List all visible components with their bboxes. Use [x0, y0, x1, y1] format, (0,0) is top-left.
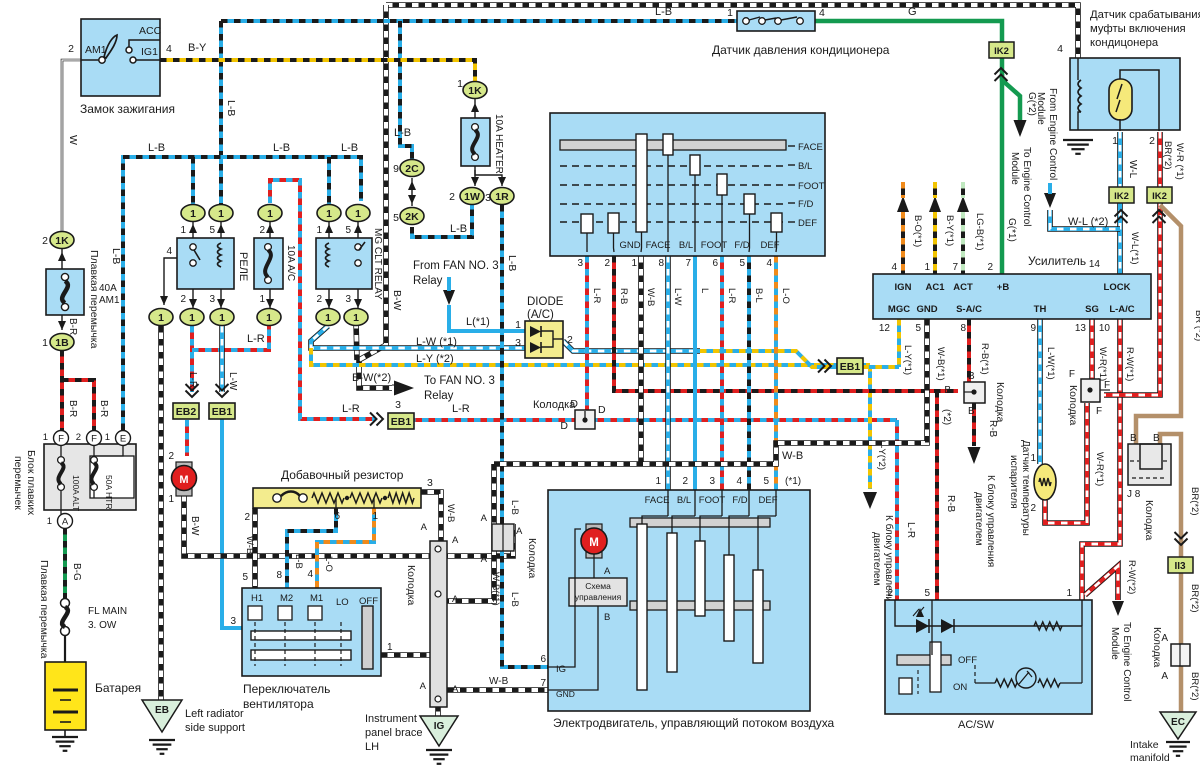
- svg-text:H1: H1: [251, 593, 263, 604]
- svg-text:+B: +B: [997, 282, 1010, 293]
- svg-text:DEF: DEF: [759, 495, 778, 506]
- svg-text:4: 4: [1057, 43, 1063, 55]
- svg-text:F/D: F/D: [732, 495, 747, 506]
- svg-text:W-B: W-B: [244, 536, 255, 554]
- svg-text:5: 5: [924, 588, 930, 599]
- svg-text:EB1: EB1: [840, 361, 861, 373]
- svg-text:1: 1: [266, 312, 272, 324]
- svg-text:L-B: L-B: [110, 248, 122, 264]
- svg-text:R-B: R-B: [987, 420, 998, 438]
- svg-text:L-O: L-O: [780, 288, 791, 304]
- svg-text:4: 4: [307, 569, 313, 580]
- svg-text:EB1: EB1: [212, 406, 233, 418]
- svg-text:L-R: L-R: [591, 288, 602, 303]
- svg-text:5: 5: [763, 476, 769, 487]
- svg-text:panel brace: panel brace: [365, 727, 423, 739]
- svg-text:II3: II3: [1174, 561, 1186, 572]
- svg-text:5: 5: [393, 212, 399, 224]
- svg-text:Датчик давления кондиционера: Датчик давления кондиционера: [712, 43, 890, 57]
- svg-text:R-B: R-B: [945, 495, 956, 513]
- svg-text:B: B: [968, 371, 975, 382]
- svg-text:Плавкая перемычка: Плавкая перемычка: [38, 560, 50, 659]
- svg-text:1: 1: [387, 642, 393, 653]
- svg-text:2: 2: [180, 294, 186, 305]
- svg-text:L-R: L-R: [187, 372, 198, 388]
- svg-text:50A HTR: 50A HTR: [104, 475, 114, 510]
- svg-text:Module: Module: [1009, 152, 1020, 185]
- svg-text:L-R: L-R: [726, 288, 737, 303]
- svg-text:(*1): (*1): [785, 476, 801, 487]
- svg-text:Замок зажигания: Замок зажигания: [80, 102, 175, 116]
- svg-text:B/L: B/L: [677, 495, 691, 506]
- svg-text:L-R: L-R: [905, 522, 916, 538]
- svg-text:РЕЛЕ: РЕЛЕ: [237, 252, 249, 281]
- svg-text:L-R: L-R: [452, 403, 470, 415]
- svg-text:B-R: B-R: [67, 400, 78, 417]
- svg-text:2: 2: [449, 191, 455, 203]
- svg-text:ON: ON: [953, 682, 967, 693]
- svg-text:Module: Module: [1035, 92, 1046, 125]
- svg-text:L-B: L-B: [273, 142, 290, 154]
- svg-text:F: F: [1096, 406, 1102, 417]
- svg-text:(*2): (*2): [941, 409, 952, 425]
- svg-text:A: A: [452, 535, 459, 546]
- svg-text:двигателем: двигателем: [973, 492, 984, 546]
- svg-text:1K: 1K: [468, 85, 482, 97]
- svg-text:D: D: [560, 420, 568, 432]
- svg-text:управления: управления: [575, 592, 622, 602]
- svg-text:1: 1: [457, 78, 463, 90]
- svg-text:2: 2: [76, 432, 81, 443]
- svg-text:F: F: [91, 434, 97, 445]
- svg-text:1: 1: [168, 494, 174, 505]
- svg-text:двигателем: двигателем: [871, 532, 882, 586]
- svg-text:AC/SW: AC/SW: [958, 719, 995, 731]
- svg-text:FACE: FACE: [798, 142, 823, 153]
- svg-text:A: A: [516, 526, 523, 537]
- svg-text:испарителя: испарителя: [1008, 455, 1019, 509]
- svg-text:BR(*2): BR(*2): [1189, 487, 1200, 516]
- svg-text:1: 1: [105, 432, 110, 443]
- svg-text:FOOT: FOOT: [798, 181, 825, 192]
- svg-text:OFF: OFF: [958, 655, 977, 666]
- svg-text:Датчик срабатывания: Датчик срабатывания: [1090, 9, 1200, 21]
- svg-text:BR(*2): BR(*2): [1189, 584, 1200, 613]
- svg-text:1: 1: [372, 511, 378, 522]
- svg-text:EC: EC: [1171, 717, 1185, 728]
- svg-text:6: 6: [540, 654, 546, 665]
- svg-text:1: 1: [353, 312, 359, 324]
- svg-text:1: 1: [267, 208, 273, 220]
- svg-text:100A ALT: 100A ALT: [71, 475, 81, 511]
- svg-text:1K: 1K: [55, 235, 69, 247]
- svg-text:Колодка: Колодка: [1151, 627, 1163, 668]
- svg-text:2K: 2K: [405, 211, 419, 223]
- svg-text:To Engine Control: To Engine Control: [1121, 622, 1132, 702]
- svg-text:Колодка: Колодка: [526, 538, 538, 579]
- svg-text:F: F: [1104, 380, 1110, 391]
- svg-text:1: 1: [42, 337, 48, 349]
- svg-text:AM1: AM1: [85, 44, 107, 56]
- svg-text:B-W(*2): B-W(*2): [352, 372, 391, 384]
- svg-text:B: B: [1130, 433, 1137, 444]
- svg-text:W-R (*1): W-R (*1): [1174, 143, 1185, 180]
- svg-text:LH: LH: [365, 741, 379, 753]
- svg-text:7: 7: [685, 258, 691, 269]
- svg-text:B-W: B-W: [189, 516, 200, 536]
- svg-text:IGN: IGN: [895, 282, 912, 293]
- svg-text:FL MAIN: FL MAIN: [88, 606, 127, 617]
- svg-text:L-B: L-B: [293, 554, 304, 569]
- svg-text:1: 1: [655, 476, 661, 487]
- svg-text:Батарея: Батарея: [95, 681, 141, 695]
- svg-text:S-A/C: S-A/C: [956, 304, 982, 315]
- svg-text:2: 2: [887, 588, 893, 599]
- svg-text:Добавочный резистор: Добавочный резистор: [281, 468, 404, 482]
- svg-text:2: 2: [987, 262, 993, 273]
- svg-text:LO: LO: [336, 597, 349, 608]
- svg-text:W-L(*1): W-L(*1): [1129, 232, 1140, 265]
- svg-text:1B: 1B: [55, 337, 69, 349]
- svg-text:Колодка: Колодка: [994, 382, 1006, 423]
- svg-text:B-R: B-R: [98, 400, 109, 417]
- svg-text:3: 3: [515, 337, 521, 349]
- svg-text:To FAN NO. 3: To FAN NO. 3: [424, 375, 495, 387]
- svg-text:L-W(*1): L-W(*1): [1045, 347, 1056, 380]
- svg-text:1: 1: [218, 208, 224, 220]
- svg-text:From Engine Control: From Engine Control: [1047, 88, 1058, 180]
- svg-text:AM1: AM1: [99, 295, 120, 306]
- svg-text:5: 5: [739, 258, 745, 269]
- svg-text:5: 5: [915, 323, 921, 334]
- svg-text:муфты включения: муфты включения: [1090, 23, 1186, 35]
- svg-text:A: A: [604, 566, 611, 577]
- svg-text:(A/C): (A/C): [527, 309, 554, 321]
- svg-text:К блоку управления: К блоку управления: [985, 475, 997, 567]
- svg-text:1: 1: [515, 319, 521, 331]
- svg-text:1: 1: [158, 312, 164, 324]
- svg-text:LG-B(*1): LG-B(*1): [974, 213, 985, 250]
- svg-text:6: 6: [334, 511, 340, 522]
- svg-text:1: 1: [326, 208, 332, 220]
- svg-text:IK2: IK2: [1114, 191, 1129, 202]
- svg-text:3: 3: [709, 476, 715, 487]
- svg-text:G(*1): G(*1): [1006, 218, 1017, 242]
- svg-text:IG: IG: [556, 664, 566, 675]
- svg-text:B: B: [1153, 433, 1160, 444]
- svg-text:L-A/C: L-A/C: [1109, 304, 1134, 315]
- svg-text:1: 1: [259, 294, 265, 305]
- svg-text:1: 1: [190, 208, 196, 220]
- svg-text:B-Y(*1): B-Y(*1): [944, 215, 955, 246]
- svg-text:B-L: B-L: [753, 288, 764, 303]
- svg-text:Instrument: Instrument: [365, 713, 417, 725]
- svg-text:L-B: L-B: [394, 127, 411, 139]
- svg-text:Колодка: Колодка: [1067, 385, 1079, 426]
- svg-text:F: F: [58, 434, 64, 445]
- svg-text:FACE: FACE: [645, 495, 670, 506]
- svg-text:вентилятора: вентилятора: [243, 697, 314, 711]
- svg-text:9: 9: [393, 163, 399, 175]
- svg-text:FOOT: FOOT: [701, 240, 728, 251]
- svg-text:кондицонера: кондицонера: [1090, 37, 1159, 49]
- svg-text:6: 6: [712, 258, 718, 269]
- svg-text:12: 12: [879, 323, 891, 334]
- svg-text:D: D: [598, 404, 606, 416]
- svg-text:Переключатель: Переключатель: [243, 682, 330, 696]
- svg-text:W-B: W-B: [645, 288, 656, 306]
- svg-text:Колодка: Колодка: [405, 565, 417, 606]
- svg-text:LOCK: LOCK: [1104, 282, 1131, 293]
- svg-text:перемычек: перемычек: [12, 456, 24, 510]
- svg-text:3: 3: [209, 294, 215, 305]
- svg-text:B: B: [968, 406, 975, 417]
- svg-text:2: 2: [244, 512, 250, 523]
- svg-text:1: 1: [355, 208, 361, 220]
- svg-text:B-R: B-R: [67, 318, 78, 335]
- svg-text:L-Y(*2): L-Y(*2): [876, 440, 887, 470]
- svg-text:DIODE: DIODE: [527, 296, 564, 308]
- svg-text:G: G: [908, 6, 917, 18]
- svg-text:L-Y(*1): L-Y(*1): [902, 345, 913, 375]
- svg-text:1: 1: [316, 225, 322, 236]
- svg-text:IK2: IK2: [1152, 191, 1167, 202]
- svg-text:2: 2: [168, 451, 174, 462]
- svg-text:9: 9: [1030, 323, 1036, 334]
- svg-text:J 8: J 8: [1127, 489, 1141, 500]
- svg-text:IG1: IG1: [141, 46, 158, 58]
- svg-text:7: 7: [540, 678, 546, 689]
- svg-text:1W: 1W: [464, 191, 480, 203]
- svg-text:FACE: FACE: [646, 240, 671, 251]
- svg-text:Датчик температуры: Датчик температуры: [1020, 440, 1031, 536]
- svg-text:side support: side support: [185, 722, 245, 734]
- svg-text:40A: 40A: [99, 283, 117, 294]
- svg-text:2: 2: [604, 258, 610, 269]
- svg-text:M: M: [589, 537, 599, 549]
- svg-text:L-B: L-B: [655, 6, 672, 18]
- svg-text:2: 2: [316, 294, 322, 305]
- svg-text:L-B: L-B: [148, 142, 165, 154]
- svg-text:E: E: [120, 434, 126, 445]
- svg-text:F: F: [1069, 369, 1075, 380]
- svg-text:4: 4: [166, 246, 172, 257]
- svg-text:2: 2: [1149, 135, 1155, 147]
- svg-text:2: 2: [1030, 503, 1036, 514]
- svg-text:B/L: B/L: [679, 240, 693, 251]
- svg-text:10: 10: [1099, 323, 1111, 334]
- svg-text:2: 2: [42, 235, 48, 247]
- svg-text:W-B: W-B: [489, 676, 509, 687]
- svg-text:D: D: [570, 398, 578, 410]
- svg-text:F/D: F/D: [734, 240, 749, 251]
- svg-text:R-B: R-B: [618, 288, 629, 304]
- svg-text:4: 4: [766, 258, 772, 269]
- svg-text:W-B: W-B: [445, 504, 456, 522]
- svg-text:W-R(*1): W-R(*1): [1097, 347, 1108, 381]
- svg-text:ACC: ACC: [139, 25, 162, 37]
- svg-text:Relay: Relay: [424, 390, 454, 402]
- svg-text:To Engine Control: To Engine Control: [1021, 147, 1032, 227]
- svg-text:EB1: EB1: [391, 416, 412, 428]
- svg-text:L: L: [699, 288, 710, 293]
- svg-text:A: A: [421, 522, 428, 533]
- svg-text:1: 1: [631, 258, 637, 269]
- svg-text:B-W: B-W: [391, 290, 403, 311]
- svg-text:A: A: [481, 513, 488, 524]
- svg-text:10A A/C: 10A A/C: [285, 245, 296, 281]
- svg-text:R-B(*1): R-B(*1): [979, 343, 990, 375]
- svg-text:R-W(*1): R-W(*1): [1124, 347, 1135, 381]
- svg-text:IK2: IK2: [994, 46, 1009, 57]
- svg-text:W: W: [67, 135, 79, 145]
- svg-text:Блок плавких: Блок плавких: [25, 450, 37, 516]
- svg-text:DEF: DEF: [761, 240, 780, 251]
- svg-text:B-O(*1): B-O(*1): [912, 215, 923, 247]
- svg-text:2C: 2C: [405, 163, 419, 175]
- svg-text:8: 8: [276, 570, 282, 581]
- svg-text:M1: M1: [310, 593, 323, 604]
- svg-text:4: 4: [819, 7, 825, 19]
- svg-text:B: B: [604, 612, 610, 623]
- svg-text:1: 1: [924, 262, 930, 273]
- svg-text:EB2: EB2: [176, 406, 197, 418]
- svg-text:TH: TH: [1034, 304, 1047, 315]
- svg-text:L-O: L-O: [323, 556, 334, 572]
- svg-text:3. OW: 3. OW: [88, 620, 117, 631]
- svg-text:Left radiator: Left radiator: [185, 708, 244, 720]
- svg-text:GND: GND: [556, 689, 575, 699]
- svg-text:L-W: L-W: [672, 288, 683, 305]
- svg-text:2: 2: [567, 334, 573, 346]
- svg-text:L-Y (*2): L-Y (*2): [416, 353, 454, 365]
- svg-text:BR (*2): BR (*2): [1193, 310, 1200, 341]
- svg-text:Intake: Intake: [1130, 739, 1159, 751]
- svg-text:3: 3: [230, 616, 236, 627]
- svg-text:1: 1: [219, 312, 225, 324]
- svg-text:2: 2: [259, 225, 265, 236]
- svg-text:F/D: F/D: [798, 199, 813, 210]
- svg-text:B-G: B-G: [71, 563, 82, 581]
- svg-text:7: 7: [952, 262, 958, 273]
- svg-text:MGC: MGC: [888, 304, 910, 315]
- svg-text:2: 2: [68, 43, 74, 55]
- svg-text:W-B(*1): W-B(*1): [935, 347, 946, 381]
- svg-text:8: 8: [960, 323, 966, 334]
- svg-text:A: A: [62, 517, 69, 528]
- svg-text:3: 3: [395, 399, 401, 411]
- svg-text:5: 5: [345, 225, 351, 236]
- svg-text:Module: Module: [1109, 627, 1120, 660]
- svg-text:5: 5: [209, 225, 215, 236]
- svg-text:1: 1: [1066, 588, 1072, 599]
- svg-text:A: A: [481, 554, 488, 565]
- svg-text:MG CLT RELAY: MG CLT RELAY: [372, 228, 383, 300]
- svg-text:L-B: L-B: [341, 142, 358, 154]
- svg-text:GND: GND: [619, 240, 640, 251]
- svg-text:A: A: [1161, 671, 1168, 682]
- svg-text:3: 3: [577, 258, 583, 269]
- svg-text:A: A: [420, 681, 427, 692]
- svg-text:1: 1: [43, 432, 48, 443]
- svg-text:Схема: Схема: [585, 581, 611, 591]
- svg-text:R-W(*2): R-W(*2): [1126, 560, 1137, 594]
- svg-text:BR(*2): BR(*2): [1162, 141, 1173, 170]
- svg-text:4: 4: [736, 476, 742, 487]
- svg-text:GND: GND: [916, 304, 937, 315]
- svg-text:B/L: B/L: [798, 161, 812, 172]
- svg-text:1: 1: [47, 516, 52, 527]
- svg-text:Электродвигатель, управляющий: Электродвигатель, управляющий потоком во…: [553, 716, 835, 730]
- svg-text:1: 1: [1112, 135, 1118, 147]
- svg-text:EB: EB: [155, 705, 169, 716]
- svg-text:B-Y: B-Y: [188, 42, 207, 54]
- svg-text:A: A: [452, 684, 459, 695]
- svg-text:DEF: DEF: [798, 218, 817, 229]
- svg-text:W-L (*2): W-L (*2): [1068, 216, 1108, 228]
- svg-text:Колодка: Колодка: [1143, 500, 1155, 541]
- svg-text:4: 4: [891, 262, 897, 273]
- svg-text:L-R: L-R: [247, 333, 265, 345]
- svg-text:SG: SG: [1085, 304, 1099, 315]
- svg-text:W-B: W-B: [782, 450, 803, 462]
- svg-text:3: 3: [427, 477, 433, 489]
- svg-text:10A HEATER: 10A HEATER: [493, 114, 504, 174]
- svg-text:1: 1: [189, 312, 195, 324]
- svg-text:4: 4: [166, 43, 172, 55]
- svg-text:W-B(*1): W-B(*1): [490, 572, 501, 606]
- svg-text:1: 1: [325, 312, 331, 324]
- svg-text:W-L: W-L: [1127, 160, 1138, 179]
- svg-text:1: 1: [727, 7, 733, 19]
- svg-text:B: B: [944, 385, 951, 396]
- svg-text:1: 1: [180, 225, 186, 236]
- svg-text:L-R: L-R: [342, 403, 360, 415]
- svg-text:AC1: AC1: [925, 282, 945, 293]
- svg-text:5: 5: [242, 572, 248, 583]
- svg-text:L-B: L-B: [506, 255, 518, 271]
- svg-text:L-W (*1): L-W (*1): [416, 336, 457, 348]
- svg-text:L-B: L-B: [225, 100, 237, 116]
- svg-text:Relay: Relay: [413, 275, 443, 287]
- svg-text:L-B: L-B: [509, 592, 520, 607]
- svg-text:3: 3: [345, 294, 351, 305]
- svg-text:IG: IG: [434, 721, 445, 732]
- svg-text:From FAN NO. 3: From FAN NO. 3: [413, 260, 499, 272]
- svg-text:1R: 1R: [495, 191, 509, 203]
- svg-text:ACT: ACT: [953, 282, 973, 293]
- svg-text:L(*1): L(*1): [466, 316, 490, 328]
- svg-text:2: 2: [682, 476, 688, 487]
- svg-text:L-B: L-B: [450, 223, 467, 235]
- svg-text:W-R(*1): W-R(*1): [1094, 452, 1105, 486]
- svg-text:13: 13: [1075, 323, 1087, 334]
- svg-text:L-W: L-W: [227, 372, 238, 391]
- svg-text:BR(*2): BR(*2): [1189, 672, 1200, 701]
- svg-text:manifold: manifold: [1130, 752, 1170, 764]
- svg-text:L-B: L-B: [509, 500, 520, 515]
- svg-text:1: 1: [1030, 453, 1036, 464]
- svg-text:14: 14: [1089, 259, 1101, 270]
- svg-text:Усилитель: Усилитель: [1028, 254, 1086, 268]
- svg-text:A: A: [452, 594, 459, 605]
- svg-text:M: M: [179, 474, 188, 486]
- svg-text:8: 8: [658, 258, 664, 269]
- svg-text:M2: M2: [280, 593, 293, 604]
